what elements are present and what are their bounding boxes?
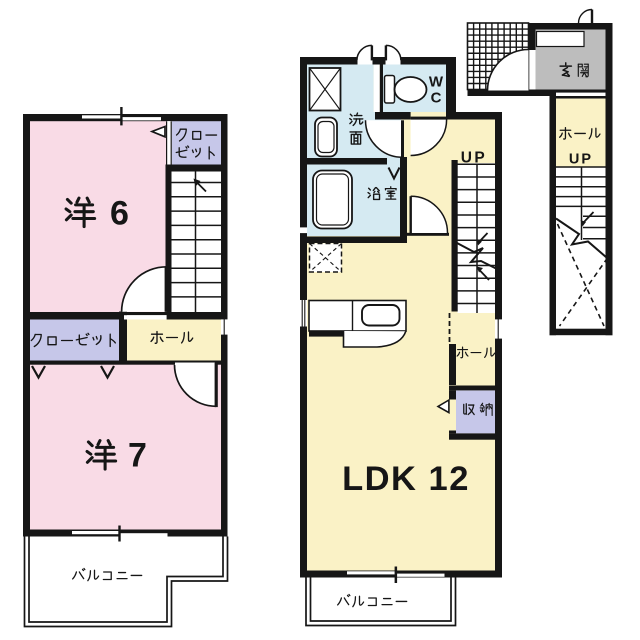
svg-text:UP: UP <box>569 152 593 168</box>
svg-text:LDK 12: LDK 12 <box>342 460 470 498</box>
svg-text:UP: UP <box>461 150 488 167</box>
svg-text:6: 6 <box>110 195 129 233</box>
svg-text:C: C <box>431 90 442 107</box>
svg-text:W: W <box>429 74 444 91</box>
svg-text:7: 7 <box>128 437 147 475</box>
